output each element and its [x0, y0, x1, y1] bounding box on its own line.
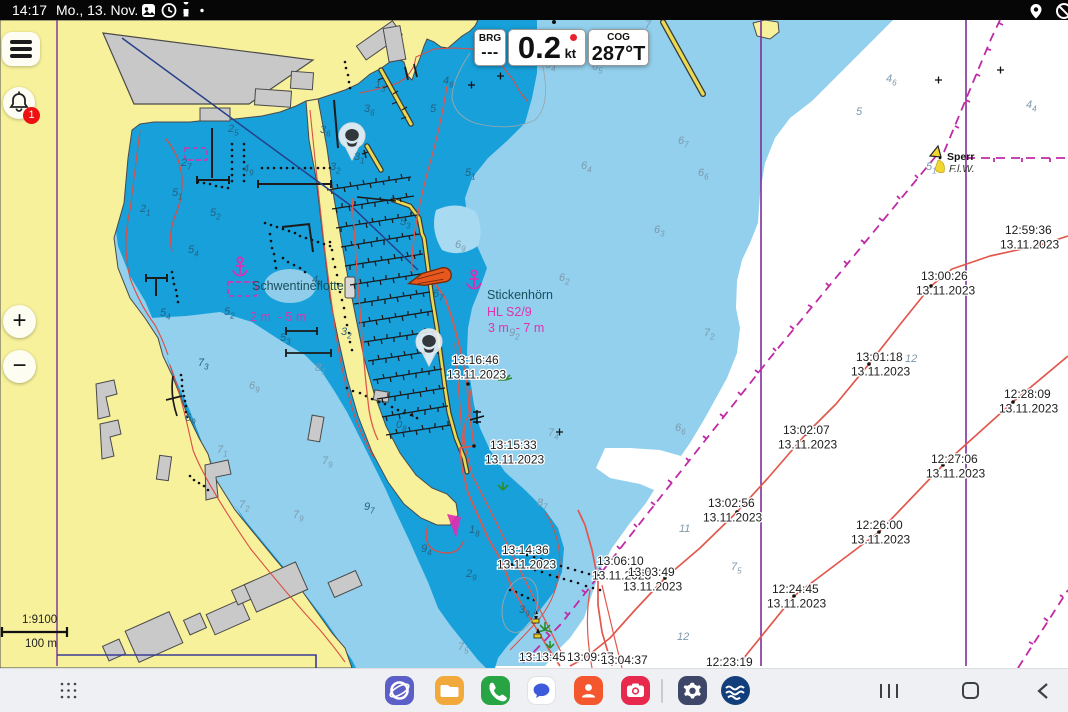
svg-text:12:59:36: 12:59:36	[1005, 223, 1052, 237]
svg-text:12:24:45: 12:24:45	[772, 582, 819, 596]
svg-text:13.11.2023: 13.11.2023	[916, 284, 975, 298]
svg-text:12:23:19: 12:23:19	[706, 655, 753, 668]
svg-text:Stickenhörn: Stickenhörn	[487, 288, 553, 302]
svg-text:13:16:46: 13:16:46	[452, 353, 499, 367]
svg-text:13:02:56: 13:02:56	[708, 496, 755, 510]
svg-text:12:28:09: 12:28:09	[1004, 387, 1051, 401]
svg-text:13.11.2023: 13.11.2023	[851, 533, 910, 547]
svg-text:13.11.2023: 13.11.2023	[778, 438, 837, 452]
svg-text:12:26:00: 12:26:00	[856, 518, 903, 532]
svg-text:13.11.2023: 13.11.2023	[999, 402, 1058, 416]
svg-text:5: 5	[856, 106, 863, 118]
svg-text:12: 12	[905, 353, 917, 365]
svg-text:13:04:37: 13:04:37	[601, 653, 648, 667]
svg-text:13:03:49: 13:03:49	[628, 565, 675, 579]
svg-text:13.11.2023: 13.11.2023	[623, 580, 682, 594]
svg-text:13:13:45: 13:13:45	[519, 650, 566, 664]
svg-text:2 m - 5 m: 2 m - 5 m	[250, 310, 306, 324]
svg-text:13:00:26: 13:00:26	[921, 269, 968, 283]
svg-text:13:01:18: 13:01:18	[856, 350, 903, 364]
svg-text:13.11.2023: 13.11.2023	[1000, 238, 1059, 252]
svg-text:5: 5	[430, 103, 437, 115]
svg-text:13:14:36: 13:14:36	[502, 543, 549, 557]
svg-text:Sperr: Sperr	[947, 151, 974, 163]
svg-text:13.11.2023: 13.11.2023	[767, 597, 826, 611]
svg-text:12: 12	[677, 631, 689, 643]
svg-text:HL S2/9: HL S2/9	[487, 305, 532, 319]
svg-text:13.11.2023: 13.11.2023	[447, 368, 506, 382]
svg-text:13.11.2023: 13.11.2023	[851, 365, 910, 379]
svg-text:13.11.2023: 13.11.2023	[497, 558, 556, 572]
svg-text:Schwentineflotte: Schwentineflotte	[252, 279, 344, 293]
svg-text:13.11.2023: 13.11.2023	[926, 467, 985, 481]
svg-text:12:27:06: 12:27:06	[931, 452, 978, 466]
svg-text:11: 11	[679, 523, 690, 535]
svg-text:3 m - 7 m: 3 m - 7 m	[488, 321, 544, 335]
svg-text:13:15:33: 13:15:33	[490, 438, 537, 452]
svg-text:13.11.2023: 13.11.2023	[485, 453, 544, 467]
svg-text:13:02:07: 13:02:07	[783, 423, 830, 437]
svg-text:F.l.W.: F.l.W.	[949, 163, 975, 175]
svg-text:13.11.2023: 13.11.2023	[703, 511, 762, 525]
